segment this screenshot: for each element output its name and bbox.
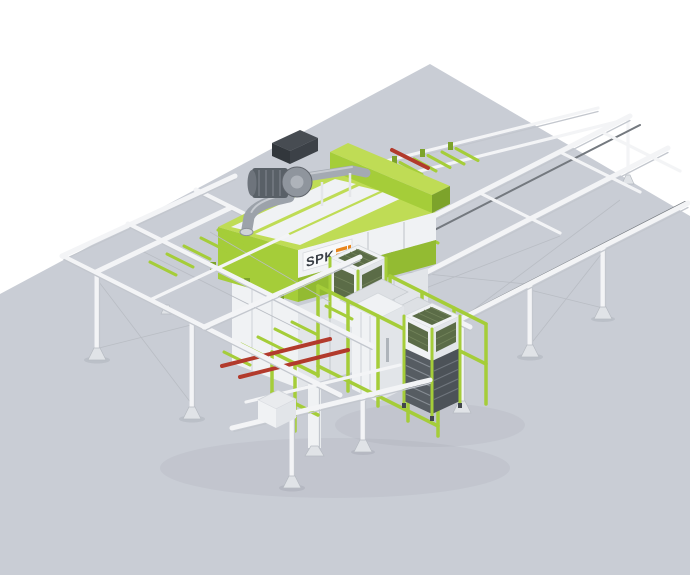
cabinet-foot — [458, 403, 462, 408]
filter-cabinet-front — [402, 303, 462, 421]
motor-end-cap — [248, 170, 257, 196]
machine-render: SPK — [0, 0, 690, 575]
cabinet-label — [386, 338, 389, 362]
cabinet-foot — [402, 403, 406, 408]
render-stage: SPK — [0, 0, 690, 575]
duct-outlet — [240, 228, 253, 235]
cabinet-foot — [430, 416, 434, 421]
